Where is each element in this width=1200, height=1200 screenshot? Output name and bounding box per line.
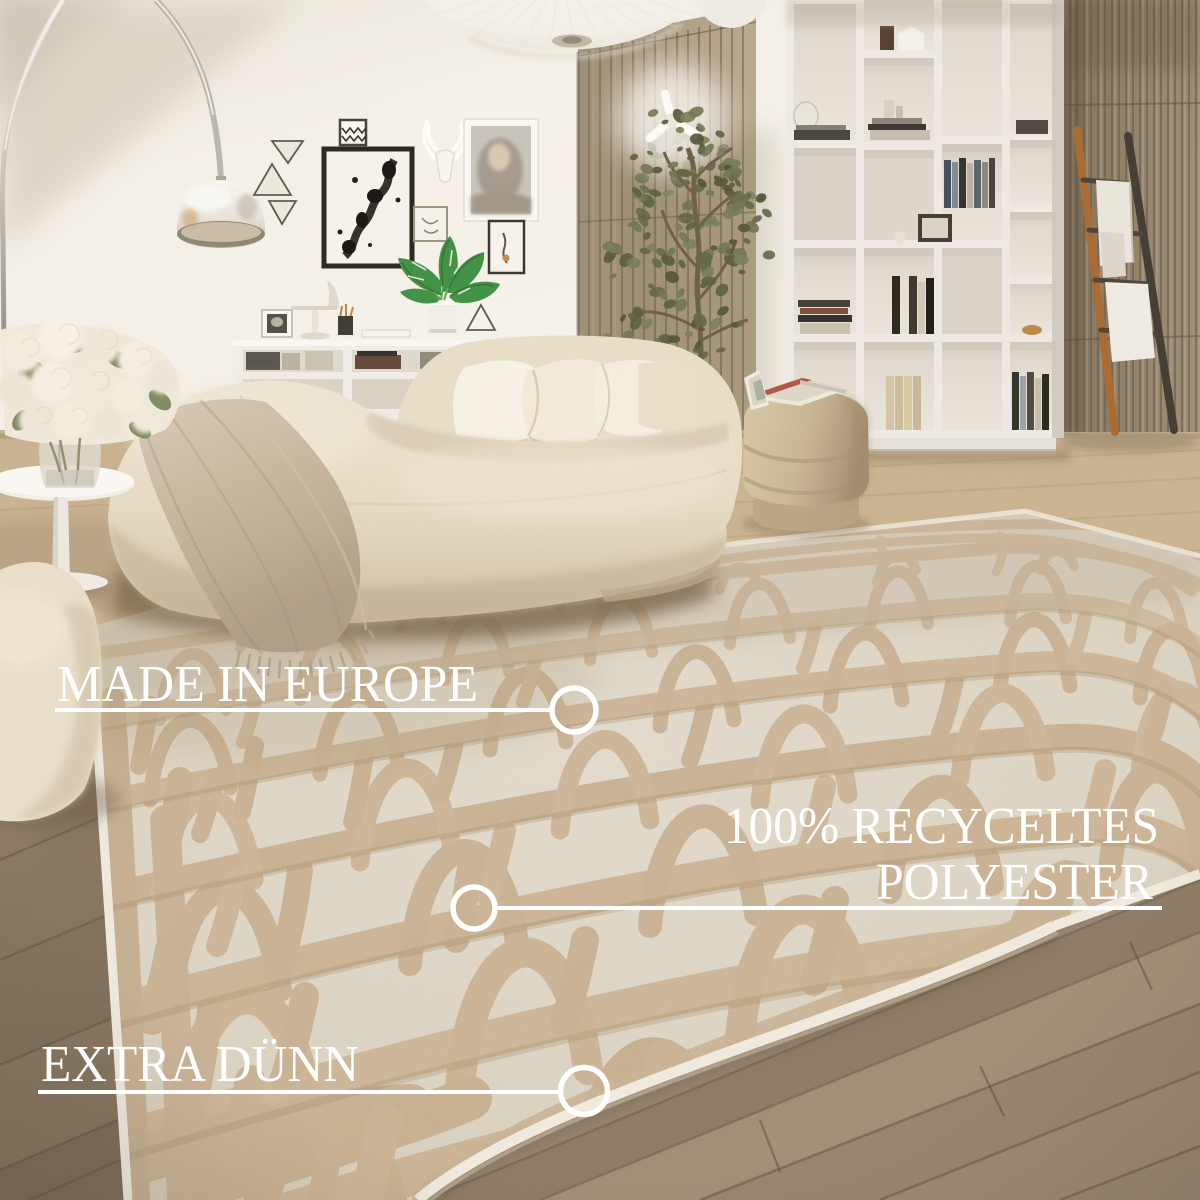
svg-text:100% RECYCELTES: 100% RECYCELTES: [724, 798, 1159, 855]
svg-text:POLYESTER: POLYESTER: [876, 854, 1153, 911]
svg-text:EXTRA DÜNN: EXTRA DÜNN: [41, 1036, 359, 1093]
svg-text:MADE IN EUROPE: MADE IN EUROPE: [57, 656, 478, 713]
